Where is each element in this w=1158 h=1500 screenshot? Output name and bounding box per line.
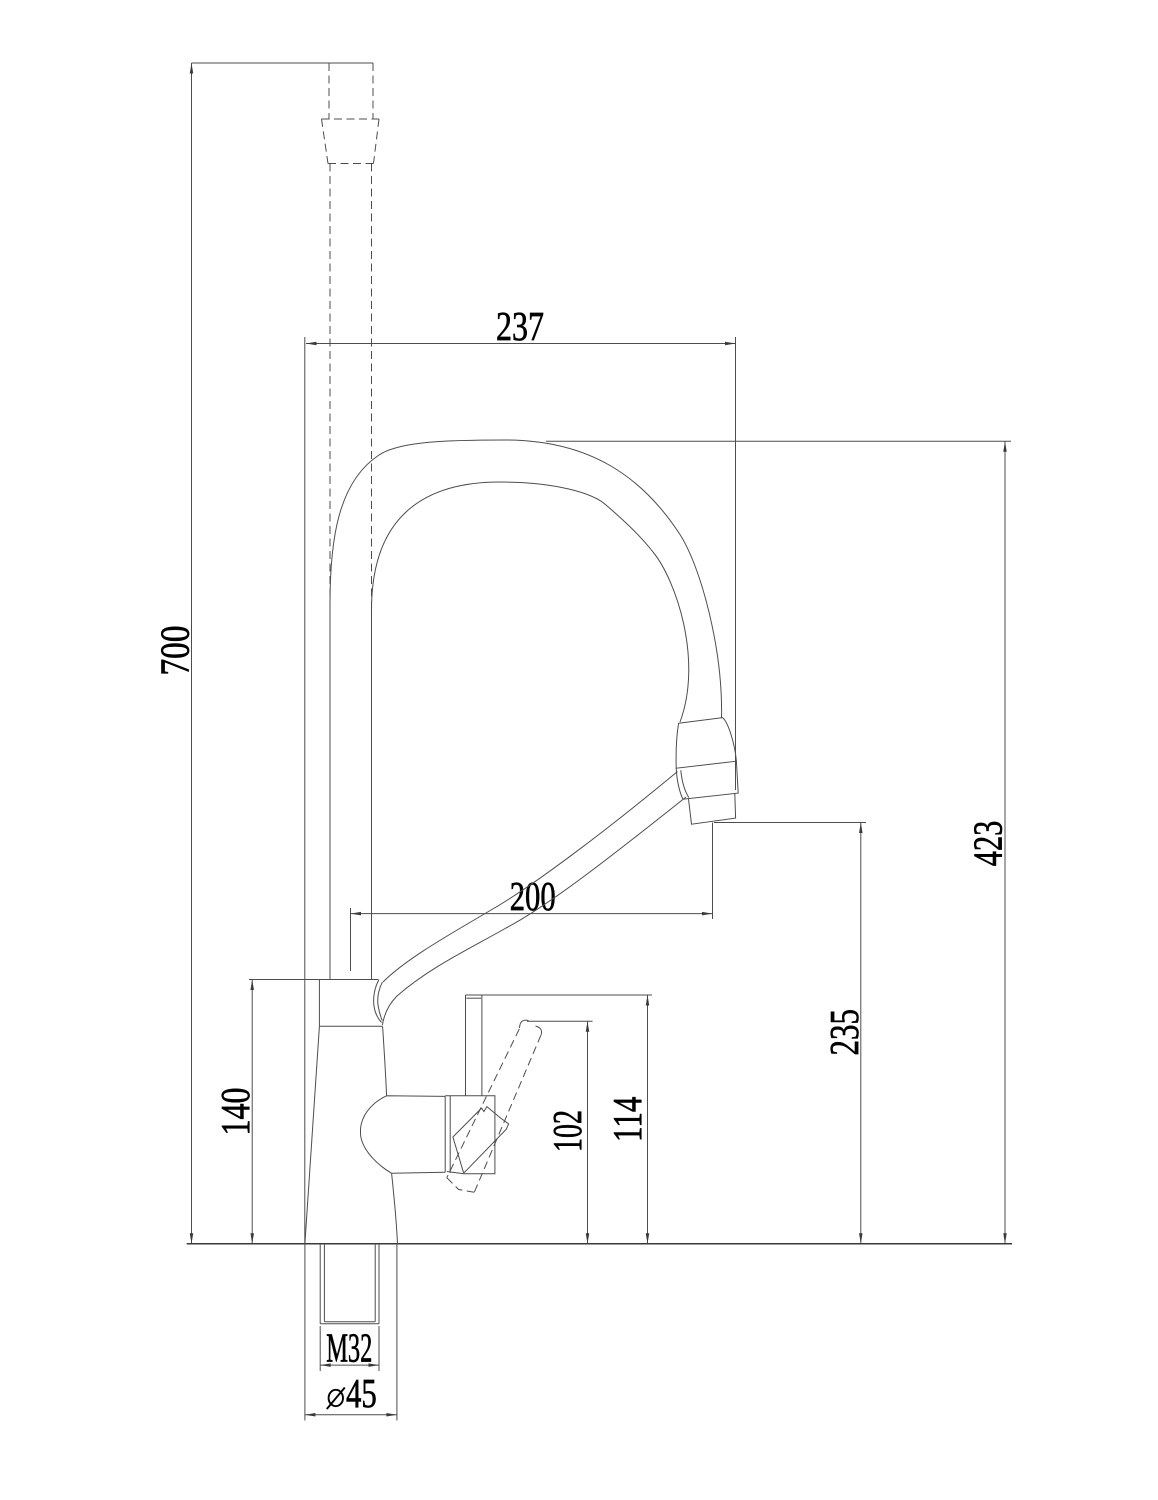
svg-text:114: 114 xyxy=(604,1097,650,1142)
svg-text:45: 45 xyxy=(346,1370,377,1416)
svg-text:237: 237 xyxy=(496,303,544,349)
svg-text:102: 102 xyxy=(544,1110,590,1152)
svg-text:M32: M32 xyxy=(326,1325,372,1371)
svg-text:140: 140 xyxy=(212,1088,258,1136)
svg-text:700: 700 xyxy=(152,626,198,676)
svg-text:423: 423 xyxy=(965,821,1011,866)
svg-text:235: 235 xyxy=(821,1009,867,1056)
